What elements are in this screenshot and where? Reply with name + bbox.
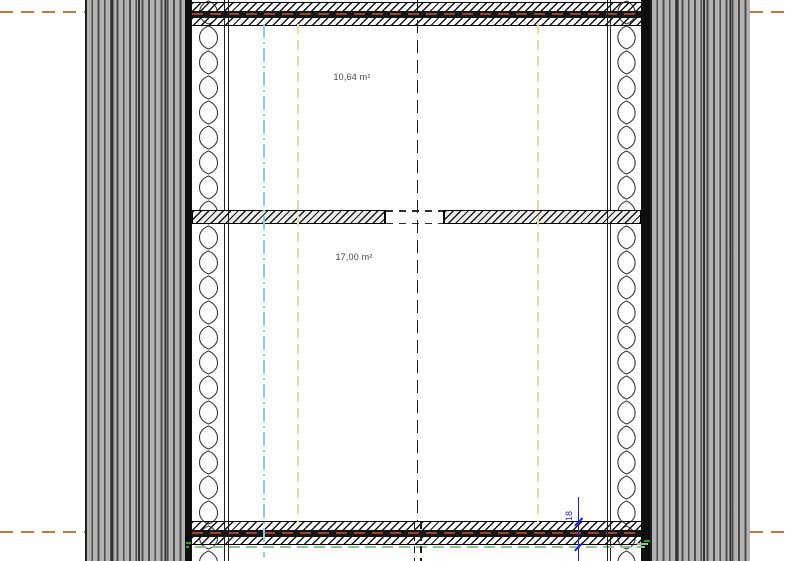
green-mark (186, 546, 189, 548)
door-opening-dash-top (386, 210, 443, 212)
dimension-text-upper: 18 (561, 495, 577, 521)
reference-line-bottom-right (750, 531, 785, 533)
hatch-strip (192, 522, 641, 530)
dimension-text-lower: 18 (561, 548, 577, 561)
left-wall-inner-face-line (228, 0, 229, 561)
right-exterior-cladding (650, 0, 750, 561)
right-insulation-layer (610, 0, 641, 561)
axis-line-cyan (263, 24, 265, 557)
band-core (192, 530, 641, 537)
insulation-pattern-icon (611, 0, 642, 561)
partition-wall-left-segment (192, 210, 386, 224)
center-axis-line-lower-b (420, 522, 422, 561)
hatch-strip (192, 537, 641, 545)
center-axis-line-lower-a (414, 522, 416, 561)
axis-line-yellow-left (297, 24, 299, 522)
left-wall-core (185, 0, 192, 561)
green-mark (637, 543, 655, 545)
door-opening-dash-bottom (386, 223, 443, 225)
reference-line-bottom-left (0, 531, 85, 533)
partition-wall-right-segment (443, 210, 641, 224)
reference-line-top-left (0, 11, 85, 13)
green-mark (644, 540, 650, 542)
reference-line-top-right (750, 11, 785, 13)
green-mark (186, 542, 191, 544)
room-2-area-label: 17,00 m² (294, 252, 414, 262)
axis-line-yellow-right (537, 24, 539, 522)
left-exterior-cladding (85, 0, 185, 561)
right-wall-inner-face-line (607, 0, 608, 561)
dimension-line (578, 497, 580, 561)
left-insulation-layer (192, 0, 225, 561)
band-axis-line (192, 532, 641, 534)
right-wall-core (641, 0, 650, 561)
insulation-pattern-icon (192, 0, 225, 561)
center-axis-line (417, 0, 419, 522)
room-1-area-label: 10,64 m² (292, 72, 412, 82)
floor-plan-canvas: 18 18 10,64 m² 17,00 m² (0, 0, 785, 561)
